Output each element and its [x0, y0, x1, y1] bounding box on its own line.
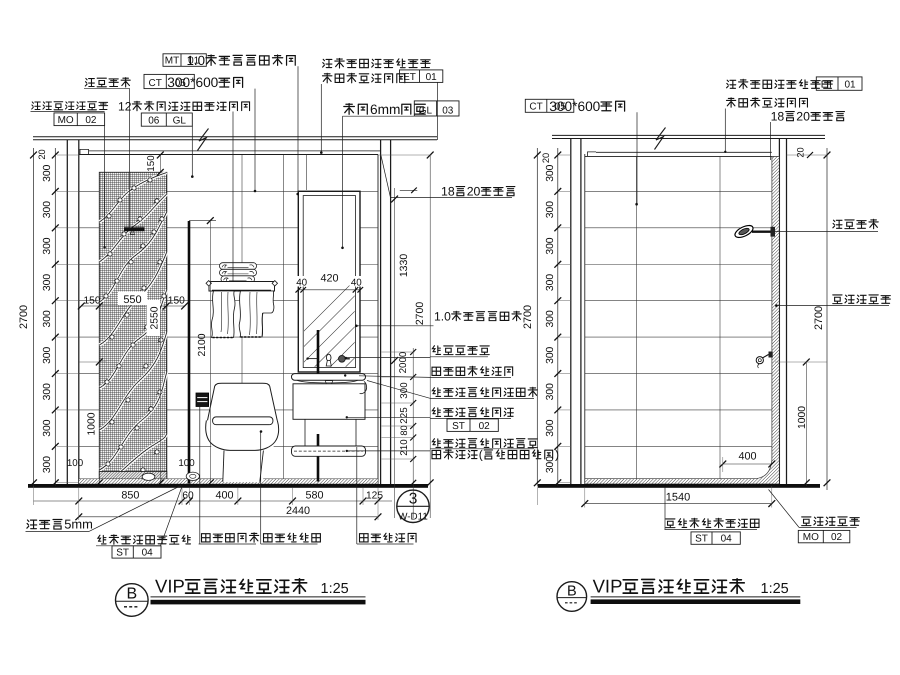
svg-text:300: 300 [42, 274, 53, 291]
svg-text:300: 300 [42, 456, 53, 473]
svg-text:01: 01 [844, 80, 856, 91]
svg-text:300: 300 [42, 237, 53, 254]
svg-text:300: 300 [545, 274, 556, 291]
svg-text:2700: 2700 [18, 305, 30, 329]
svg-text:B: B [567, 583, 577, 599]
svg-text:300: 300 [545, 383, 556, 400]
svg-text:1:25: 1:25 [321, 581, 349, 597]
svg-text:2700: 2700 [813, 306, 825, 330]
svg-text:150: 150 [168, 296, 185, 307]
svg-text:300*600: 300*600 [549, 99, 600, 114]
svg-text:12: 12 [118, 99, 132, 113]
svg-text:MO: MO [803, 532, 819, 543]
svg-text:300: 300 [545, 346, 556, 363]
svg-text:ET: ET [403, 72, 416, 83]
svg-text:ET: ET [821, 80, 834, 91]
svg-text:300: 300 [545, 201, 556, 218]
svg-text:150: 150 [84, 296, 101, 307]
svg-text:300: 300 [545, 310, 556, 327]
svg-text:550: 550 [123, 294, 141, 306]
svg-text:1330: 1330 [398, 254, 410, 278]
svg-text:3: 3 [409, 490, 418, 507]
svg-text:CT: CT [529, 102, 542, 113]
svg-text:100: 100 [67, 458, 84, 469]
svg-text:300: 300 [42, 201, 53, 218]
svg-text:20: 20 [796, 109, 810, 123]
svg-text:300: 300 [42, 383, 53, 400]
svg-text:04: 04 [721, 534, 733, 545]
svg-text:VIP: VIP [155, 576, 185, 597]
svg-text:GL: GL [419, 105, 433, 116]
svg-text:2000: 2000 [398, 351, 409, 373]
svg-text:210: 210 [399, 439, 410, 456]
svg-text:400: 400 [215, 489, 233, 501]
svg-text:1540: 1540 [666, 492, 690, 504]
svg-text:GL: GL [173, 116, 187, 127]
svg-text:MT: MT [165, 56, 179, 67]
svg-text:ST: ST [452, 421, 465, 432]
svg-text:300: 300 [42, 419, 53, 436]
svg-text:300: 300 [545, 237, 556, 254]
svg-text:1000: 1000 [86, 412, 97, 435]
svg-text:20: 20 [37, 149, 47, 159]
svg-text:18: 18 [441, 184, 455, 198]
svg-text:2440: 2440 [286, 505, 310, 517]
svg-text:2550: 2550 [150, 306, 161, 329]
svg-text:03: 03 [442, 105, 454, 116]
svg-text:225: 225 [399, 407, 410, 424]
svg-text:850: 850 [121, 489, 139, 501]
svg-text:150: 150 [146, 155, 157, 172]
svg-text:2700: 2700 [522, 305, 534, 329]
svg-text:300: 300 [545, 419, 556, 436]
svg-text:06: 06 [148, 116, 160, 127]
svg-text:2100: 2100 [197, 333, 208, 356]
svg-text:1000: 1000 [797, 406, 808, 429]
svg-text:02: 02 [831, 532, 843, 543]
svg-text:B: B [126, 586, 137, 603]
svg-text:02: 02 [479, 421, 491, 432]
svg-text:60: 60 [182, 490, 194, 501]
svg-text:02: 02 [85, 115, 97, 126]
svg-text:125: 125 [366, 490, 383, 501]
svg-text:300*600: 300*600 [167, 75, 218, 90]
svg-text:5mm: 5mm [64, 517, 93, 532]
svg-text:100: 100 [178, 458, 195, 469]
svg-text:W-D11: W-D11 [398, 512, 428, 523]
svg-text:20: 20 [467, 184, 481, 198]
svg-text:420: 420 [320, 273, 338, 285]
svg-text:VIP: VIP [593, 576, 623, 597]
svg-text:(: ( [479, 448, 483, 462]
svg-text:1.0: 1.0 [434, 309, 451, 323]
svg-text:40: 40 [351, 277, 362, 288]
svg-text:300: 300 [545, 164, 556, 181]
svg-text:6mm: 6mm [370, 102, 400, 117]
svg-text:2700: 2700 [414, 302, 426, 326]
svg-text:40: 40 [296, 277, 307, 288]
svg-text:300: 300 [42, 310, 53, 327]
svg-text:300: 300 [42, 346, 53, 363]
svg-text:580: 580 [305, 489, 323, 501]
svg-text:1.0: 1.0 [187, 53, 206, 68]
svg-text:400: 400 [738, 451, 756, 463]
svg-text:ST: ST [695, 534, 708, 545]
svg-text:1:25: 1:25 [761, 581, 789, 597]
svg-text:300: 300 [42, 164, 53, 181]
svg-text:04: 04 [142, 548, 154, 559]
svg-text:20: 20 [796, 147, 806, 157]
svg-text:CT: CT [148, 78, 161, 89]
svg-text:18: 18 [771, 109, 785, 123]
svg-text:ST: ST [116, 548, 129, 559]
svg-text:80: 80 [399, 425, 409, 435]
svg-text:20: 20 [541, 153, 551, 163]
svg-text:300: 300 [545, 456, 556, 473]
svg-text:01: 01 [426, 72, 438, 83]
svg-text:MO: MO [58, 115, 74, 126]
